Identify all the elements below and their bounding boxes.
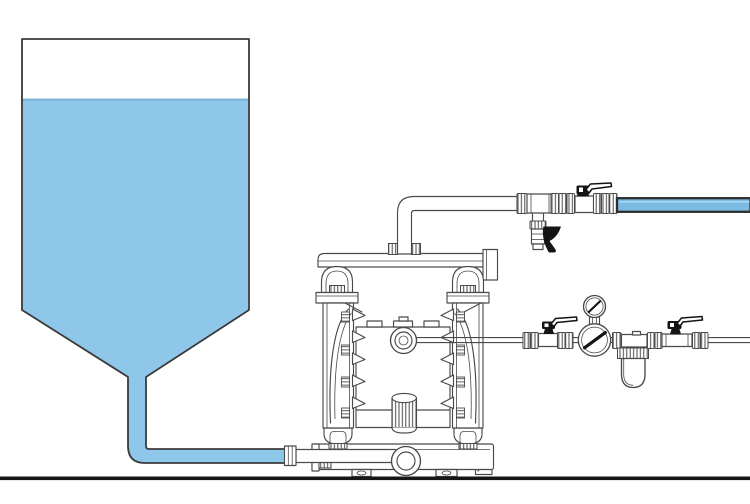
pump-right-collar bbox=[447, 293, 489, 304]
air-pressure-gauge bbox=[584, 296, 606, 318]
diagram-stage bbox=[0, 0, 750, 504]
ball-valve-lever bbox=[586, 183, 612, 193]
air-filter bbox=[618, 332, 649, 388]
double-diaphragm-pump bbox=[296, 244, 498, 477]
discharge-hose bbox=[617, 198, 750, 212]
pump-left-collar bbox=[316, 293, 358, 304]
diagram-canvas bbox=[0, 0, 750, 504]
supply-tank bbox=[22, 39, 286, 463]
pump-center-body bbox=[353, 309, 454, 433]
pump-air-valve-port bbox=[391, 328, 417, 354]
ground-line bbox=[0, 477, 750, 481]
stored-liquid bbox=[22, 99, 286, 463]
air-pressure-regulator bbox=[578, 296, 610, 357]
drain-valve bbox=[530, 221, 561, 253]
pump-manifold-flange bbox=[483, 250, 498, 281]
discharge-tee bbox=[527, 194, 553, 222]
filter-bowl bbox=[622, 359, 646, 388]
pump-inlet-elbow bbox=[392, 447, 421, 476]
pump-inlet-pipe bbox=[296, 450, 395, 463]
drain-valve-handle bbox=[543, 227, 561, 253]
fluid-discharge-line bbox=[398, 183, 750, 254]
pipe-union bbox=[517, 194, 527, 214]
hose-ferrule bbox=[285, 446, 297, 466]
